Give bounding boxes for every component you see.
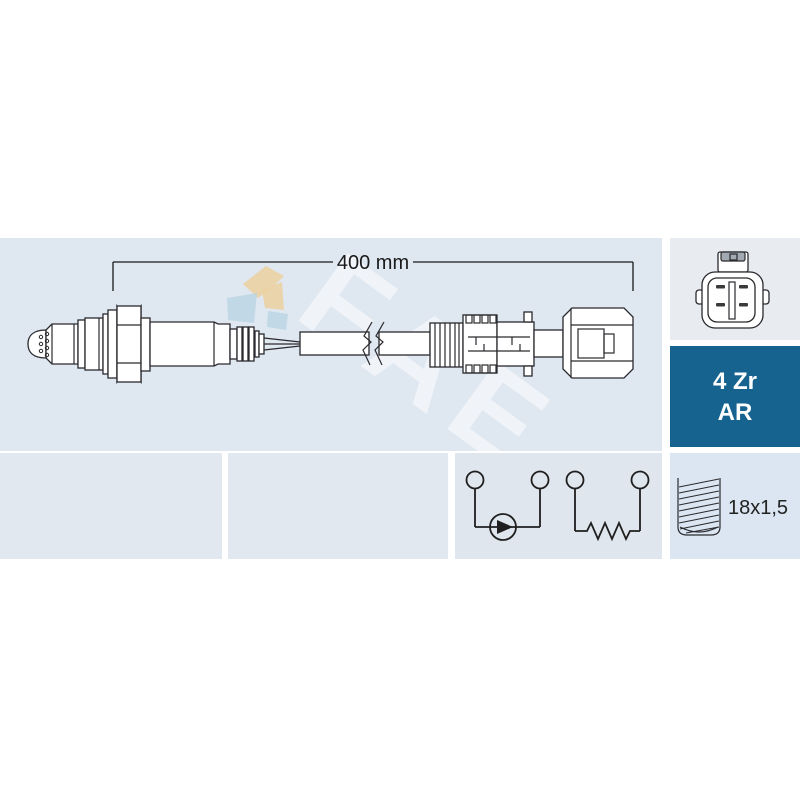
spec-badge-line1: 4 Zr — [713, 366, 757, 397]
connector-side-view — [563, 308, 633, 378]
sensor-diagram-panel: FAE — [0, 238, 662, 451]
dimension-label: 400 mm — [337, 252, 409, 274]
sensor-tip — [28, 324, 78, 364]
spec-badge-line2: AR — [718, 397, 753, 428]
blank-panel-1 — [0, 453, 222, 559]
sensor-circuit-icons — [455, 453, 662, 559]
blank-panel-2 — [228, 453, 448, 559]
thread-size-label: 18x1,5 — [728, 497, 788, 519]
heater-resistor-circuit-icon — [567, 472, 649, 540]
pump-cell-circuit-icon — [467, 472, 549, 541]
product-image-card: FAE — [0, 0, 800, 800]
thread-spec-panel: 18x1,5 — [670, 453, 800, 559]
connector-face-4pin-icon — [670, 238, 800, 340]
oxygen-sensor-drawing: FAE — [0, 238, 662, 451]
thread-gauge-icon: 18x1,5 — [670, 453, 800, 559]
connector-face-panel — [670, 238, 800, 340]
spec-badge: 4 Zr AR — [670, 346, 800, 447]
circuit-diagram-panel — [455, 453, 662, 559]
